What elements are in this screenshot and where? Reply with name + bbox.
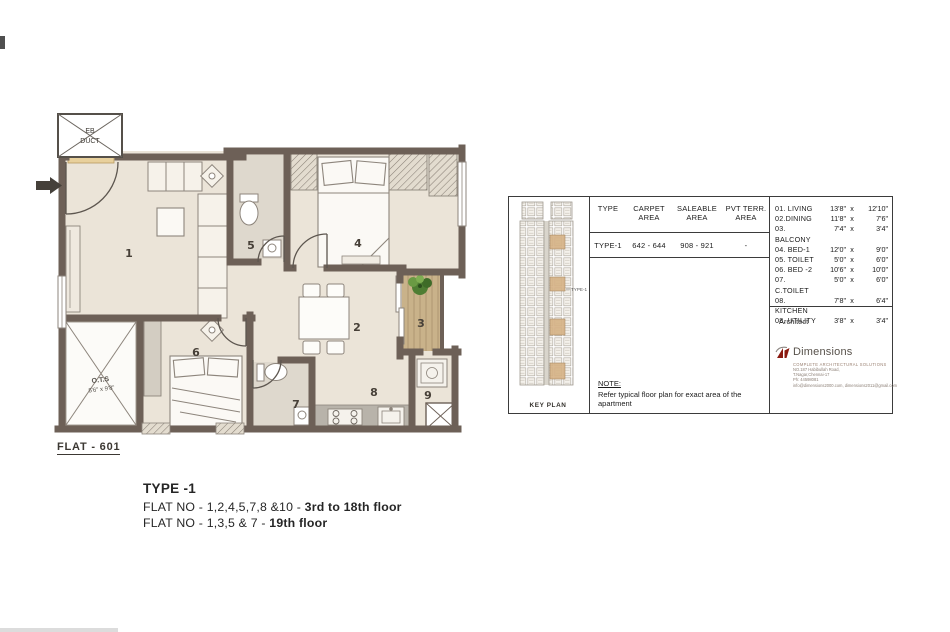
room-schedule-row: 04. BED-112'0"x9'0": [769, 245, 893, 255]
cell-carpet: 642 - 644: [627, 241, 671, 250]
bed2-wardrobe: [144, 320, 161, 396]
eb-duct: EB DUCT: [58, 114, 122, 157]
area-table: TYPE CARPETAREA SALEABLEAREA PVT TERR.AR…: [589, 197, 769, 258]
tv-console: [66, 226, 80, 312]
room-schedule-row: 02.DINING11'8"x7'6": [769, 214, 893, 224]
type-line-2-bold: 19th floor: [269, 516, 327, 530]
type-block: TYPE -1 FLAT NO - 1,2,4,5,7,8 &10 - 3rd …: [143, 481, 402, 531]
kitchen-counter: [315, 405, 410, 428]
eb-duct-label-2: DUCT: [80, 138, 100, 145]
key-plan-drawing: TYPE-1 KEY PLAN: [509, 197, 588, 413]
bed-2: [170, 356, 242, 426]
firm-phone: Ph: 44598081: [793, 378, 819, 383]
cell-pvt: -: [723, 241, 769, 250]
title-block-panel: TYPE-1 KEY PLAN TYPE CARPETAREA SALEABLE…: [508, 196, 893, 414]
type-line-1-prefix: FLAT NO - 1,2,4,5,7,8 &10 -: [143, 500, 305, 514]
entry-arrow-icon: [36, 177, 62, 194]
type-line-1-bold: 3rd to 18th floor: [305, 500, 402, 514]
room-number-ctoilet: 7: [292, 398, 300, 411]
ots-area: O.T.S 5'6" x 9'8": [66, 322, 136, 425]
header-pvt-terr-area: PVT TERR.AREA: [723, 197, 769, 232]
floor-plan-drawing: O.T.S 5'6" x 9'8": [30, 108, 470, 468]
room-schedule-row: 06. BED -210'6"x10'0": [769, 265, 893, 275]
type-title: TYPE -1: [143, 481, 402, 496]
room-number-kitchen: 8: [370, 386, 378, 399]
header-saleable-area: SALEABLEAREA: [671, 197, 723, 232]
room-number-living: 1: [125, 247, 133, 260]
room-number-toilet: 5: [247, 239, 255, 252]
room-number-bed2: 6: [192, 346, 200, 359]
room-number-bed1: 4: [354, 237, 362, 250]
header-type: TYPE: [589, 197, 627, 232]
scan-artifact-left: [0, 36, 5, 49]
architect-label: Architect: [779, 317, 808, 326]
keyplan-label: KEY PLAN: [530, 402, 567, 409]
room-number-balcony: 3: [417, 317, 425, 330]
bed1-shelf: [342, 256, 380, 264]
scan-artifact-bottom: [0, 628, 118, 632]
room-schedule-row: 03. BALCONY7'4"x3'4": [769, 224, 893, 244]
architect-block: Architect Dimensions COMPLETE ARCHITECTU…: [769, 307, 893, 413]
area-table-row: TYPE-1 642 - 644 908 - 921 -: [589, 233, 769, 258]
flat-number-label: FLAT - 601: [57, 441, 120, 455]
header-carpet-area: CARPETAREA: [627, 197, 671, 232]
firm-email: info@dimensions2000.com, dimensions2011@…: [793, 384, 897, 389]
room-number-utility: 9: [424, 389, 432, 402]
utility-duct: [426, 403, 455, 429]
coffee-table: [157, 208, 184, 236]
washing-machine-icon: [417, 359, 447, 387]
eb-duct-label-1: EB: [85, 128, 95, 135]
architect-logo-row: Dimensions: [775, 345, 852, 361]
room-number-dining: 2: [353, 321, 361, 334]
type-line-1: FLAT NO - 1,2,4,5,7,8 &10 - 3rd to 18th …: [143, 499, 402, 515]
dimensions-logo-icon: [775, 345, 791, 361]
room-schedule-row: 07. C.TOILET5'0"x6'0": [769, 275, 893, 295]
type-line-2-prefix: FLAT NO - 1,3,5 & 7 -: [143, 516, 269, 530]
note-block: NOTE: Refer typical floor plan for exact…: [598, 379, 760, 409]
room-schedule-row: 01. LIVING13'8"x12'10": [769, 204, 893, 214]
keyplan-callout: TYPE-1: [571, 287, 588, 292]
note-body: Refer typical floor plan for exact area …: [598, 390, 760, 409]
note-title: NOTE:: [598, 379, 760, 389]
area-table-header: TYPE CARPETAREA SALEABLEAREA PVT TERR.AR…: [589, 197, 769, 233]
room-schedule-row: 05. TOILET5'0"x6'0": [769, 255, 893, 265]
page-canvas: { "plan": { "flat_label": "FLAT - 601", …: [0, 0, 950, 632]
type-line-2: FLAT NO - 1,3,5 & 7 - 19th floor: [143, 515, 402, 531]
cell-type: TYPE-1: [589, 241, 627, 250]
bed-1: [318, 157, 389, 267]
cell-saleable: 908 - 921: [671, 241, 723, 250]
firm-name: Dimensions: [793, 346, 852, 358]
